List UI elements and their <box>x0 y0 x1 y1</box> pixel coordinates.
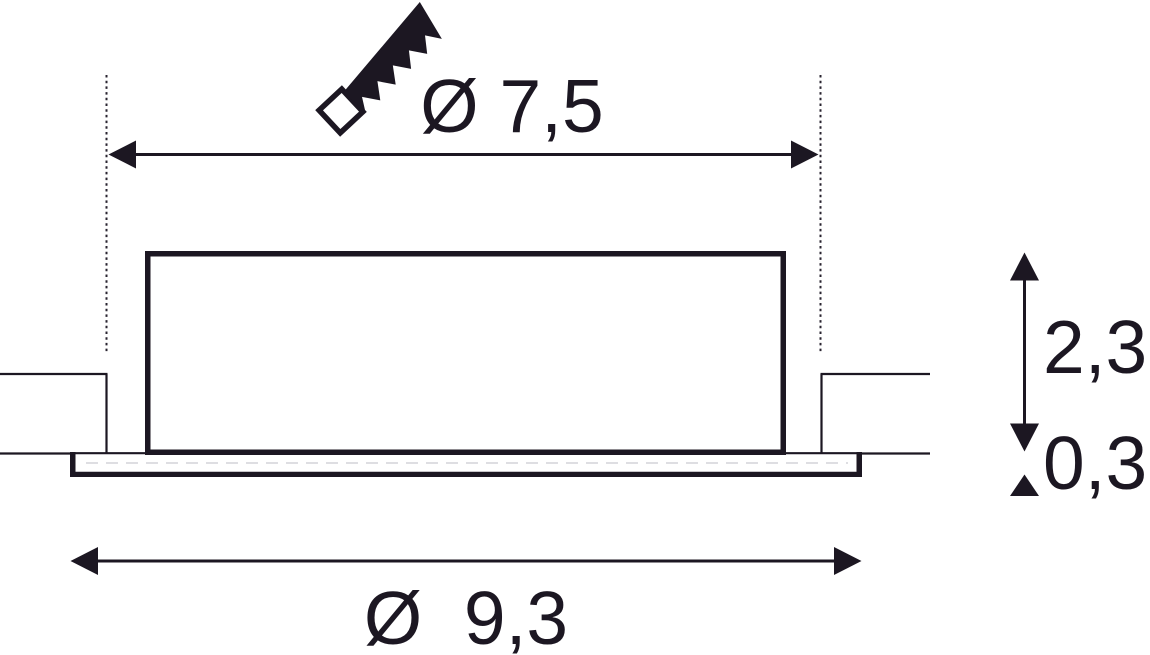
housing-height-label: 2,3 <box>1043 305 1147 389</box>
dimension-drawing: Ø 7,5 Ø 9,3 2,3 0,3 <box>0 0 1150 655</box>
arrowhead-up-icon <box>1010 475 1039 497</box>
arrowhead-down-icon <box>1010 424 1039 452</box>
trim-plate <box>70 452 862 477</box>
arrowhead-left-icon <box>109 141 137 169</box>
dim-cutout-diameter: Ø 7,5 <box>109 64 819 169</box>
overall-diameter-label: Ø 9,3 <box>364 576 568 655</box>
arrowhead-right-icon <box>834 547 862 575</box>
rim-thickness-label: 0,3 <box>1043 421 1147 505</box>
ceiling-left <box>0 374 108 454</box>
ceiling-right <box>821 374 931 454</box>
cutout-diameter-label: Ø 7,5 <box>420 64 603 148</box>
arrowhead-right-icon <box>791 141 819 169</box>
dim-overall-diameter: Ø 9,3 <box>71 547 862 655</box>
housing-body <box>148 254 784 453</box>
arrowhead-up-icon <box>1010 253 1039 281</box>
arrowhead-left-icon <box>71 547 99 575</box>
